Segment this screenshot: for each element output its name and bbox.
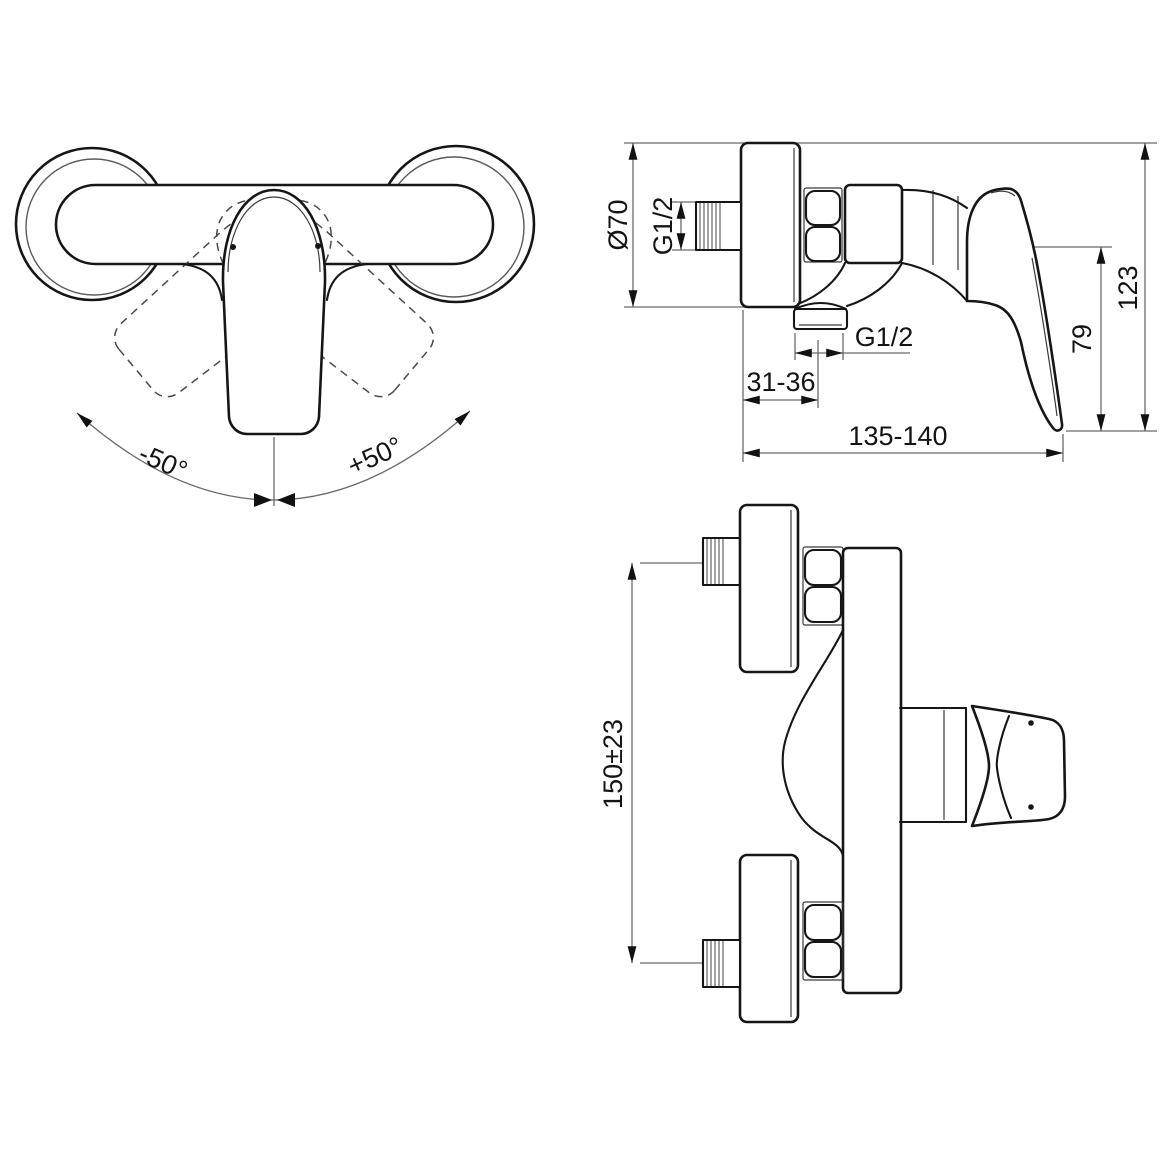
handle-knob-top-view — [972, 706, 1065, 826]
swivel-nut-side-lower-flat — [806, 227, 840, 261]
dim-label-inlet-thread: G1/2 — [648, 197, 678, 256]
lever-handle-side — [967, 189, 1062, 431]
body-underside-left-curve — [798, 263, 845, 304]
handle-pin-left — [230, 244, 236, 250]
cartridge-top-edge — [902, 190, 967, 208]
dim-label-center-distance: 150±23 — [598, 719, 628, 809]
swivel-nut-side-upper-flat — [806, 191, 840, 225]
lower-swivel-nut-flat-1 — [805, 905, 841, 940]
lower-swivel-nut-flat-2 — [805, 942, 841, 977]
handle-left-fillet — [182, 264, 222, 300]
plan-view: -50° +50° — [16, 146, 534, 507]
angle-arc-center-arrow-left — [254, 493, 272, 507]
knob-pin-lower — [1028, 804, 1034, 810]
cartridge-bottom-edge — [902, 263, 967, 301]
mixer-body-top-view — [843, 548, 901, 993]
lower-inlet-nipple — [703, 940, 740, 987]
side-view: Ø70 G1/2 G1/2 31-36 135-140 79 123 — [603, 143, 1157, 462]
handle-pin-right — [315, 243, 321, 249]
mixer-body-side — [845, 185, 902, 263]
dim-label-outlet-thread: G1/2 — [855, 322, 914, 352]
lower-wall-flange — [740, 855, 798, 1022]
dim-label-lever-height: 79 — [1067, 324, 1097, 354]
angle-label-left: -50° — [134, 438, 192, 486]
handle-right-fillet — [327, 264, 367, 300]
upper-swivel-nut-flat-2 — [805, 587, 841, 622]
handle-plan-outline — [223, 190, 325, 434]
top-view: 150±23 — [598, 505, 1065, 1022]
dim-label-overall-height: 123 — [1113, 265, 1143, 310]
wall-flange-side — [741, 143, 800, 307]
outlet-connector-side — [794, 309, 847, 329]
upper-wall-flange — [740, 505, 798, 672]
cartridge-top-view — [900, 708, 966, 822]
dim-label-overall-depth: 135-140 — [848, 421, 947, 451]
technical-drawing-svg: -50° +50° — [0, 0, 1172, 1172]
dim-label-wall-to-outlet: 31-36 — [746, 367, 815, 397]
body-underside-right-curve — [847, 263, 902, 306]
upper-inlet-nipple — [703, 538, 740, 585]
angle-label-right: +50° — [343, 431, 407, 481]
angle-arc-center-arrow-right — [277, 493, 295, 507]
upper-swivel-nut-flat-1 — [805, 550, 841, 585]
knob-pin-upper — [1028, 720, 1034, 726]
dim-label-flange-diameter: Ø70 — [603, 199, 633, 250]
inlet-nipple-side — [696, 202, 741, 250]
drawing-canvas: -50° +50° — [0, 0, 1172, 1172]
